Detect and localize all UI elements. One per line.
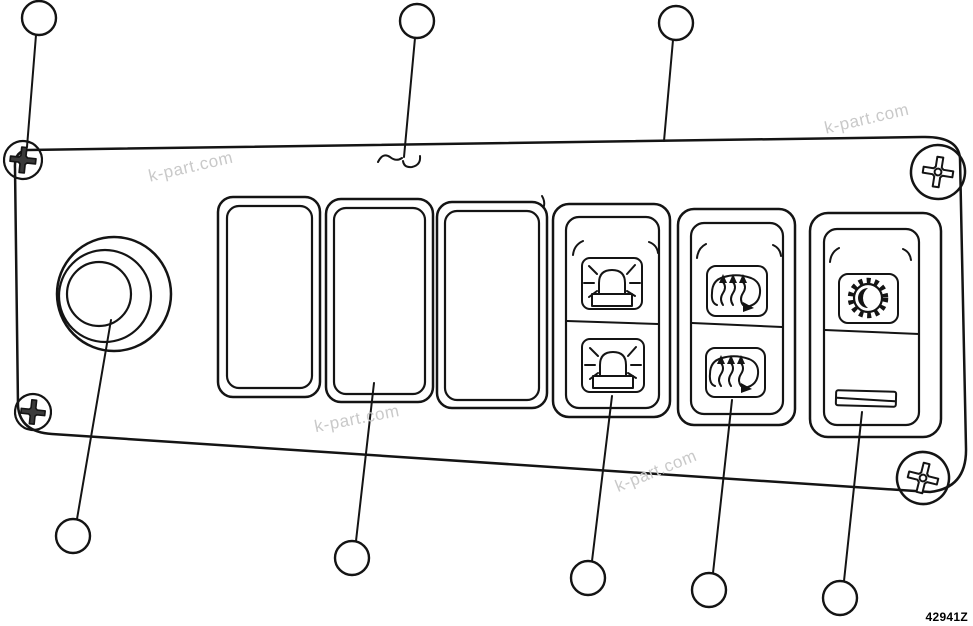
watermark: k-part.com (313, 401, 401, 436)
callout-knob-leader-line (77, 320, 111, 519)
heated-mirror-icon (706, 348, 765, 397)
screw-top-left-icon (2, 139, 44, 181)
callout-layer (22, 1, 862, 615)
beacon-light-switch (553, 204, 670, 417)
blank-rocker-switch-2 (326, 199, 433, 402)
callout-top-left-screw (22, 1, 56, 35)
beacon-icon (582, 258, 642, 309)
callout-panel-top-edge-leader-line (664, 40, 673, 141)
callout-knob (56, 519, 90, 553)
dimmer-icon (839, 274, 898, 323)
callout-beacon-switch (571, 561, 605, 595)
screw-bottom-right-icon (891, 446, 954, 509)
switch-panel-diagram: k-part.com k-part.com k-part.com k-part.… (0, 0, 973, 626)
panel-light-dimmer-switch (810, 213, 941, 437)
callout-top-left-screw-leader-line (27, 35, 36, 147)
callout-beacon-switch-leader-line (592, 396, 612, 561)
indicator-window-icon (836, 390, 896, 407)
callout-panel-top-edge (659, 6, 693, 40)
knob (57, 237, 171, 351)
blank-rocker-switch-3 (437, 196, 547, 408)
callout-blank-switch (335, 541, 369, 575)
blank-rocker-switch-1 (218, 197, 320, 397)
callout-panel-surface (400, 4, 434, 38)
callout-heater-switch (692, 573, 726, 607)
heated-mirror-icon (707, 266, 767, 316)
beacon-icon (582, 339, 644, 392)
panel-surface-squiggle-icon (378, 155, 420, 167)
part-number-label: 42941Z (926, 610, 969, 624)
callout-panel-surface-leader-line (404, 38, 415, 157)
watermark: k-part.com (823, 100, 911, 138)
watermark: k-part.com (147, 148, 235, 186)
callout-dimmer-switch (823, 581, 857, 615)
heater-switch (678, 209, 795, 425)
diagram-canvas: k-part.com k-part.com k-part.com k-part.… (0, 0, 973, 626)
